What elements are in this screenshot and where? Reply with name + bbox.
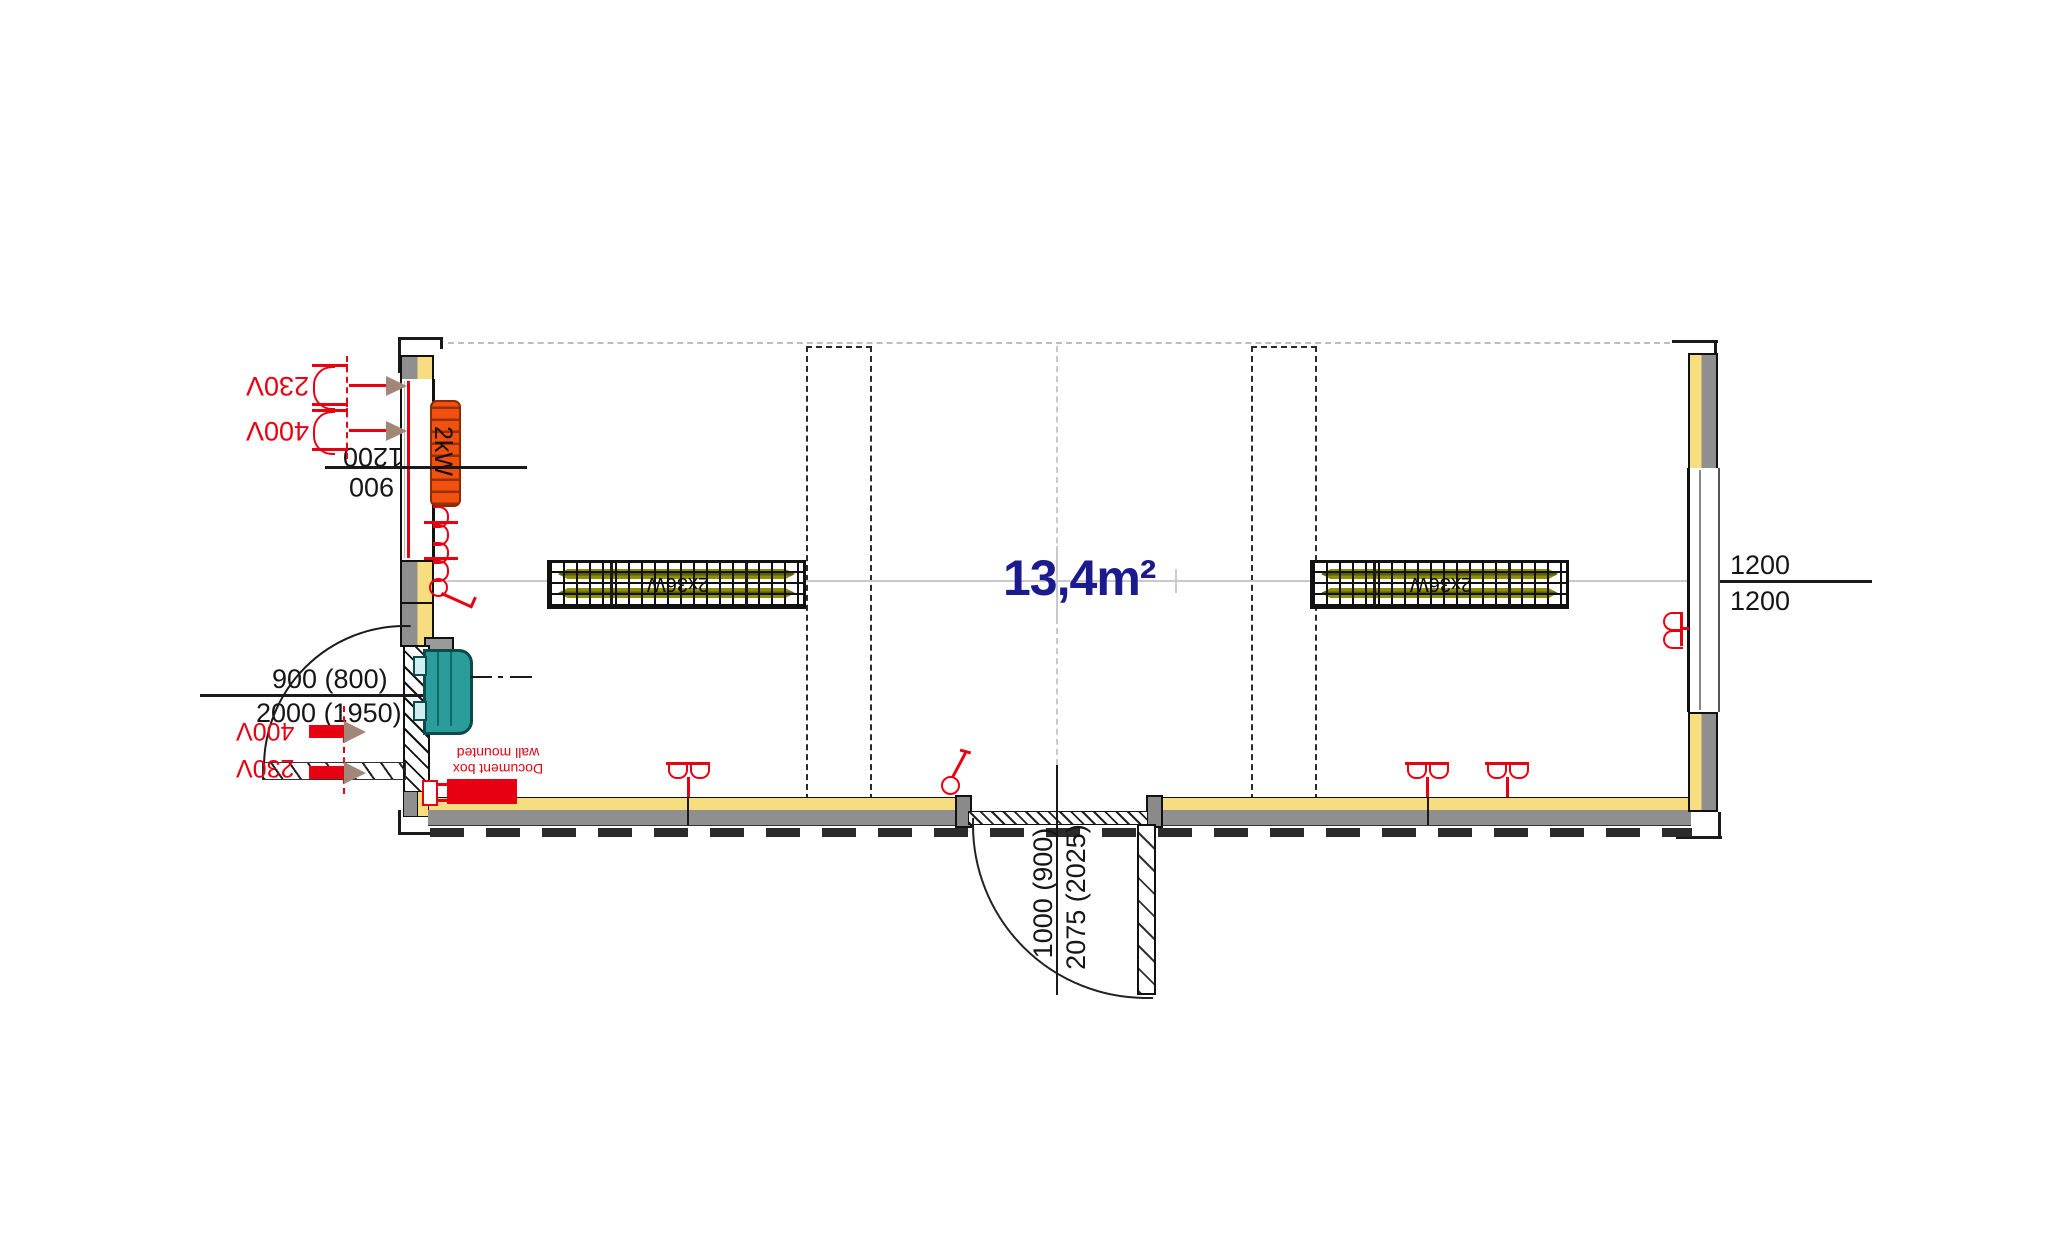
wall-unit-center-dash	[470, 676, 492, 678]
luminaire-left: 2x36W	[547, 560, 806, 609]
document-box-label: Document box wall mounted	[450, 743, 546, 777]
socket-400v-cap-top	[312, 409, 348, 412]
socket-400v-feed-line	[349, 429, 389, 432]
bottom-wall-joint-2	[1427, 797, 1429, 825]
right-wall-bottom-block	[1688, 712, 1718, 812]
socket-400v-wall-line	[346, 401, 348, 459]
floor-plan-canvas: 1000 (900) 2075 (2025) 1200 1200 2x36W 2…	[0, 0, 2056, 1240]
socket-400v-arrow-icon	[386, 421, 407, 441]
right-window-dim-upper: 1200	[1730, 550, 1790, 581]
luminaire-divider	[610, 563, 613, 606]
heating-cable-tick	[424, 557, 458, 560]
bottom-door-width-dim: 1000 (900)	[1030, 808, 1056, 978]
wall-unit-center-dash	[510, 676, 532, 678]
right-window-dim-lower: 1200	[1730, 586, 1790, 617]
luminaire-right: 2x36W	[1310, 560, 1569, 609]
document-box-label-line2: wall mounted	[450, 745, 546, 761]
right-window	[1687, 468, 1720, 712]
socket-230v-cap-bottom	[312, 403, 348, 406]
luminaire-divider	[745, 563, 748, 606]
feed-400v-label: 400V	[236, 716, 294, 745]
corner-bracket-bottom-left-v	[398, 810, 401, 834]
right-wall-top-block	[1688, 353, 1718, 472]
radiator-dim-lower: 900	[349, 471, 394, 502]
socket-400v-label: 400V	[246, 415, 309, 446]
radiator-dim-upper: 1200	[343, 441, 403, 472]
double-socket-stem	[1426, 777, 1429, 797]
double-socket-icon	[1509, 764, 1529, 779]
corner-bracket-bottom-right-v	[1718, 812, 1721, 838]
room-area-label: 13,4m²	[1003, 549, 1155, 607]
double-socket-icon	[690, 764, 710, 779]
wall-unit-tab	[413, 656, 427, 676]
bottom-wall-gray-right	[1159, 810, 1691, 826]
wall-unit-divider	[450, 652, 452, 726]
double-socket-icon	[1407, 764, 1427, 779]
luminaire-divider	[1373, 563, 1376, 606]
double-socket-stem	[1506, 777, 1509, 797]
right-window-socket-tick	[1681, 627, 1689, 630]
feed-230v-bar	[309, 766, 345, 779]
socket-230v-label: 230V	[246, 370, 309, 401]
heating-cable-tick	[424, 521, 458, 524]
socket-400v-cap-bottom	[312, 448, 348, 451]
corner-bracket-top-left	[398, 337, 442, 340]
left-window-frame-line	[404, 381, 405, 558]
light-switch-tick	[470, 597, 477, 608]
bottom-door-height-dim: 2075 (2025)	[1063, 812, 1089, 982]
door-switch-stroke	[951, 752, 966, 778]
corner-bracket-top-right	[1672, 340, 1718, 343]
wall-unit-teal	[423, 649, 473, 735]
top-boundary-line	[448, 342, 1670, 344]
center-plus-tick-v	[1175, 569, 1177, 593]
double-socket-icon	[668, 764, 688, 779]
feed-230v-label: 230V	[236, 753, 294, 782]
bottom-wall-gray-left	[428, 810, 957, 826]
double-socket-stem	[687, 777, 690, 797]
double-socket-icon	[1487, 764, 1507, 779]
skylight-band-left	[806, 346, 872, 800]
right-window-frame-line	[1699, 470, 1701, 710]
feed-230v-arrow-icon	[344, 762, 366, 784]
light-switch-stroke	[441, 592, 473, 608]
wall-unit-divider	[437, 652, 439, 726]
document-box-label-line1: Document box	[450, 761, 546, 777]
feed-400v-arrow-icon	[344, 721, 366, 743]
radiator-power-label: 2kW	[430, 422, 456, 480]
door-switch-icon	[941, 776, 960, 795]
luminaire-divider	[1508, 563, 1511, 606]
wall-unit-center-dot	[498, 676, 503, 678]
corner-bracket-top-left-step	[440, 337, 443, 349]
socket-230v-cap-top	[312, 364, 348, 367]
socket-230v-feed-line	[349, 384, 389, 387]
document-box-wall-fitting	[422, 780, 438, 806]
wall-unit-tab	[413, 701, 427, 721]
skylight-band-right	[1251, 346, 1317, 800]
double-socket-icon	[1429, 764, 1449, 779]
left-window-heating-line	[407, 381, 410, 558]
document-box	[447, 779, 517, 804]
bottom-wall-joint-1	[687, 797, 689, 825]
feed-400v-bar	[309, 725, 345, 738]
luminaire-left-label: 2x36W	[638, 572, 718, 596]
luminaire-right-label: 2x36W	[1401, 572, 1481, 596]
socket-230v-arrow-icon	[386, 376, 407, 396]
